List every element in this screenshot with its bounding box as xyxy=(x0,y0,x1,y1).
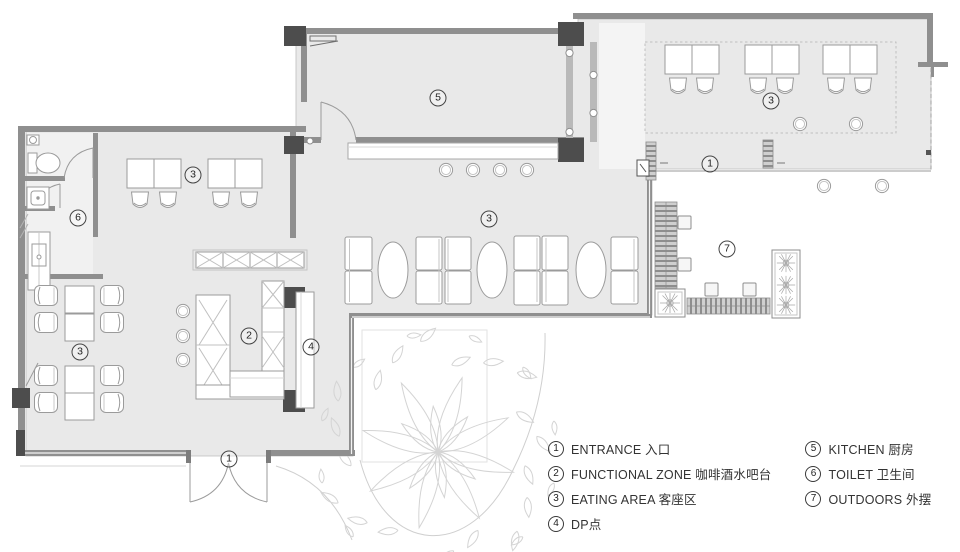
plan-marker-5: 5 xyxy=(430,90,447,107)
floor-area xyxy=(26,19,931,456)
legend-label: FUNCTIONAL ZONE 咖啡酒水吧台 xyxy=(571,464,771,483)
legend: 1ENTRANCE 入口2FUNCTIONAL ZONE 咖啡酒水吧台3EATI… xyxy=(548,436,955,536)
counter-stool xyxy=(466,163,479,176)
planter-plant xyxy=(777,296,795,314)
tree-leaf xyxy=(318,469,324,483)
plan-marker-4: 4 xyxy=(303,339,320,356)
tree-leaf xyxy=(343,524,355,538)
bar-stool xyxy=(176,353,189,366)
wall-bottom-right-of-door xyxy=(271,450,355,456)
wall-wing-top xyxy=(573,13,933,19)
lounge-cluster-1 xyxy=(35,286,124,342)
column-bottom-left xyxy=(16,430,25,456)
back-shelf xyxy=(193,250,307,270)
column-leftwing-ne xyxy=(284,136,304,154)
legend-number: 2 xyxy=(548,466,564,482)
plan-marker-3: 3 xyxy=(185,167,202,184)
tree-leaf xyxy=(319,490,340,506)
lounge-cluster-2 xyxy=(35,366,124,421)
tree-leaf xyxy=(509,530,520,551)
legend-item-3: 3EATING AREA 客座区 xyxy=(548,486,771,511)
legend-item-7: 7OUTDOORS 外摆 xyxy=(805,486,955,511)
booth-single-right xyxy=(611,237,638,304)
legend-number: 6 xyxy=(805,466,821,482)
boundary-dot xyxy=(926,150,931,155)
legend-number: 5 xyxy=(805,441,821,457)
plan-marker-3: 3 xyxy=(763,93,780,110)
planter-plant xyxy=(660,293,680,313)
counter-stool xyxy=(493,163,506,176)
plan-marker-2: 2 xyxy=(241,328,258,345)
outdoor-square-stools xyxy=(678,216,756,296)
tree-leaf xyxy=(407,332,421,338)
legend-number: 7 xyxy=(805,491,821,507)
sliding-door xyxy=(763,140,773,168)
plan-marker-6: 6 xyxy=(70,210,87,227)
bar-stool xyxy=(176,304,189,317)
legend-label: KITCHEN 厨房 xyxy=(828,439,913,458)
tree-drawing xyxy=(318,326,557,552)
plan-marker-7: 7 xyxy=(719,241,736,258)
tree-leaf xyxy=(516,369,537,380)
legend-item-5: 5KITCHEN 厨房 xyxy=(805,436,955,461)
wing-tables xyxy=(665,45,877,74)
column-kitchen-se xyxy=(558,138,584,162)
wall-kitchen-top xyxy=(296,28,584,34)
plan-marker-3: 3 xyxy=(481,211,498,228)
bar-stools xyxy=(176,304,189,366)
floorplan-page: 11233334567 1ENTRANCE 入口2FUNCTIONAL ZONE… xyxy=(0,0,960,552)
wall-kitchen-bottom xyxy=(356,137,584,143)
legend-number: 1 xyxy=(548,441,564,457)
booth-single-left xyxy=(345,237,372,304)
oval-table xyxy=(477,242,507,298)
tree-leaf xyxy=(468,334,483,344)
tree-leaf xyxy=(450,354,471,368)
tree-leaf xyxy=(465,529,481,550)
tree-leaf xyxy=(524,497,533,518)
tree-leaf xyxy=(347,515,368,526)
planter-plant xyxy=(777,254,795,272)
plan-marker-1: 1 xyxy=(221,451,238,468)
entry-corridor-floor xyxy=(599,23,645,169)
tree-leaf xyxy=(361,423,440,459)
tree-leaf xyxy=(432,448,486,522)
wc-bowl xyxy=(36,153,60,173)
legend-item-6: 6TOILET 卫生间 xyxy=(805,461,955,486)
legend-number: 3 xyxy=(548,491,564,507)
legend-label: TOILET 卫生间 xyxy=(828,464,914,483)
legend-label: ENTRANCE 入口 xyxy=(571,439,670,458)
tree-leaf xyxy=(522,464,536,485)
legend-column-2: 5KITCHEN 厨房6TOILET 卫生间7OUTDOORS 外摆 xyxy=(805,436,955,536)
bar-stool xyxy=(176,329,189,342)
wall-toilet-div1 xyxy=(25,176,65,181)
legend-column-1: 1ENTRANCE 入口2FUNCTIONAL ZONE 咖啡酒水吧台3EATI… xyxy=(548,436,771,536)
oval-table xyxy=(378,242,408,298)
tree-leaf xyxy=(434,414,471,456)
counter-stool xyxy=(439,163,452,176)
legend-label: OUTDOORS 外摆 xyxy=(828,489,931,508)
plan-marker-3: 3 xyxy=(72,344,89,361)
planter-plant xyxy=(777,276,795,294)
paving-arc xyxy=(276,466,352,540)
tree-leaf xyxy=(390,344,406,365)
wall-toilet-east xyxy=(93,133,98,237)
wall-wing-right xyxy=(927,19,933,64)
tree-leaf xyxy=(372,369,383,390)
wall-leftwing-top xyxy=(18,126,306,132)
legend-item-1: 1ENTRANCE 入口 xyxy=(548,436,771,461)
legend-number: 4 xyxy=(548,516,564,532)
wall-wing-jamb xyxy=(918,62,948,67)
legend-label: EATING AREA 客座区 xyxy=(571,489,697,508)
center-banquettes xyxy=(345,236,638,305)
tree-leaf xyxy=(436,548,456,552)
column-kitchen-nw xyxy=(284,26,306,46)
legend-item-2: 2FUNCTIONAL ZONE 咖啡酒水吧台 xyxy=(548,461,771,486)
tree-leaf xyxy=(378,527,399,536)
counter-stool xyxy=(520,163,533,176)
tree-leaf xyxy=(551,421,557,435)
legend-item-4: 4DP点 xyxy=(548,511,771,536)
tree-leaf xyxy=(483,358,504,367)
plan-marker-1: 1 xyxy=(702,156,719,173)
column-kitchen-ne xyxy=(558,22,584,46)
oval-table xyxy=(576,242,606,298)
legend-label: DP点 xyxy=(571,514,601,533)
column-left-wall xyxy=(12,388,30,408)
outdoor-area xyxy=(655,202,800,318)
